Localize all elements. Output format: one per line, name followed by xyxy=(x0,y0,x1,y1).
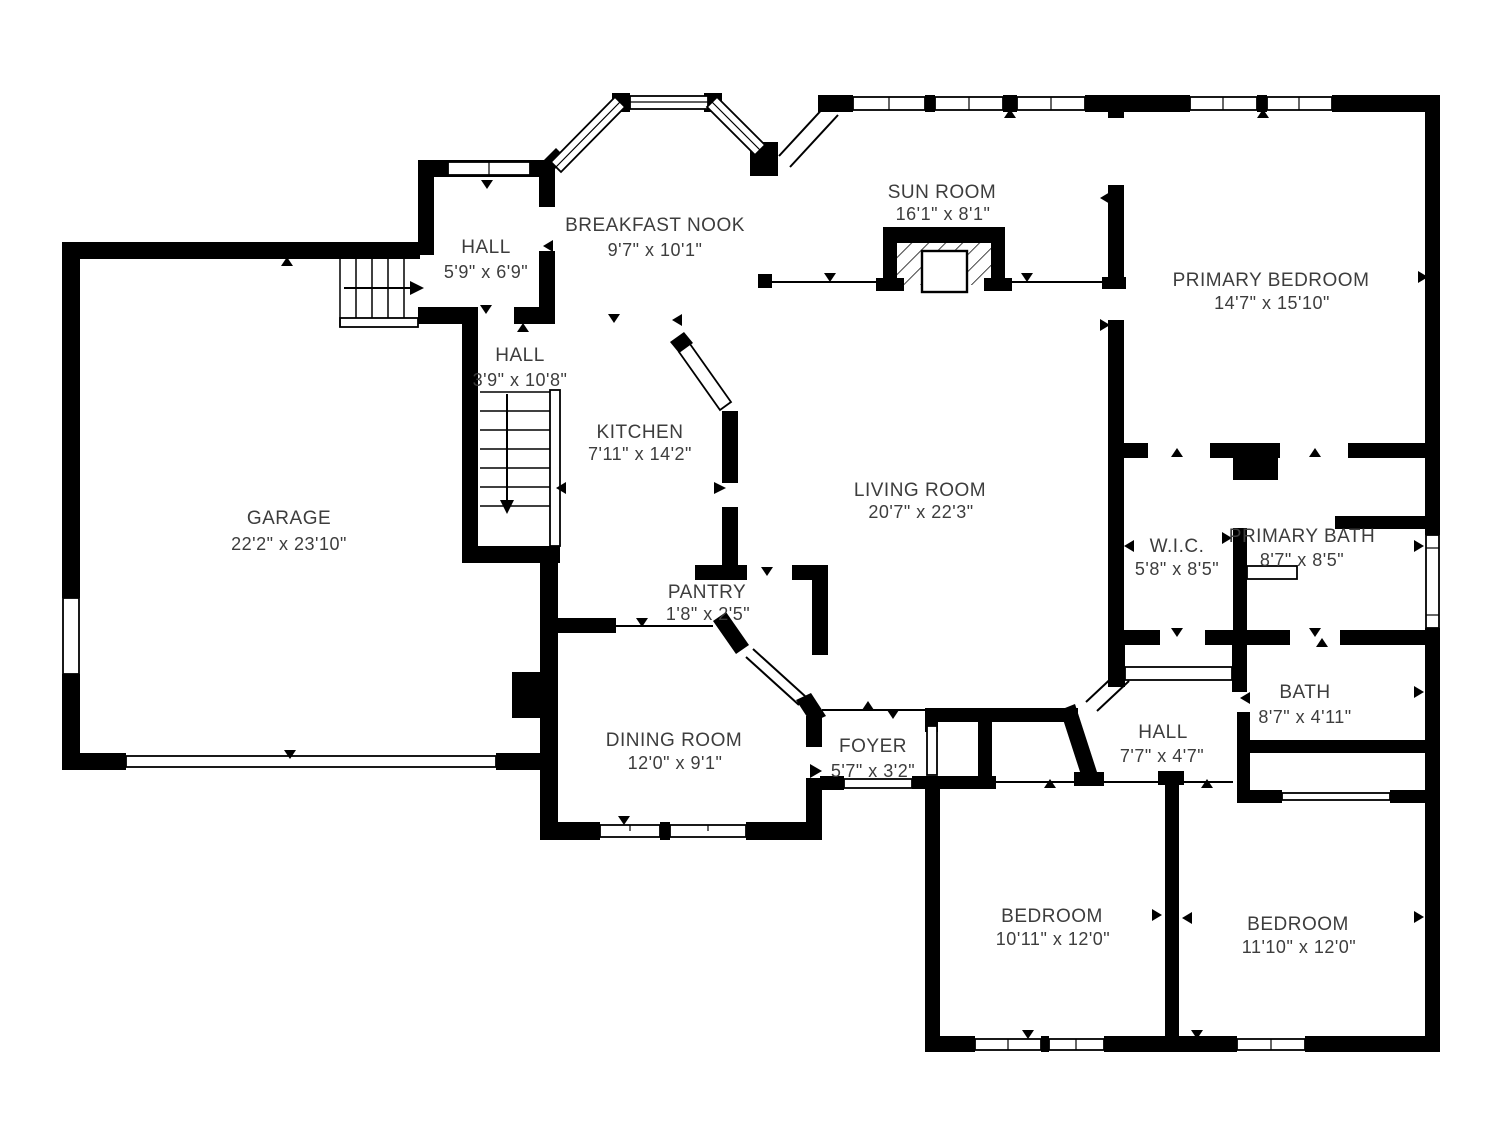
door-tick xyxy=(1124,540,1134,552)
door-tick xyxy=(1201,779,1213,788)
room-dims-dining-room: 12'0" x 9'1" xyxy=(628,753,723,773)
door-tick xyxy=(1021,273,1033,282)
garage-door xyxy=(126,756,496,767)
room-dims-hall-stairs: 3'9" x 10'8" xyxy=(473,370,568,390)
room-label-living-room: LIVING ROOM xyxy=(854,480,986,501)
door-tick xyxy=(862,701,874,710)
room-label-primary-bedroom: PRIMARY BEDROOM xyxy=(1173,270,1370,291)
room-dims-foyer: 5'7" x 3'2" xyxy=(831,761,915,781)
room-label-dining-room: DINING ROOM xyxy=(606,730,742,751)
room-dims-bedroom-left: 10'11" x 12'0" xyxy=(996,929,1110,949)
room-dims-bath: 8'7" x 4'11" xyxy=(1258,707,1351,727)
door-tick xyxy=(517,323,529,332)
door-tick xyxy=(1309,448,1321,457)
door-tick xyxy=(1022,1030,1034,1039)
stairs-up-arrow xyxy=(410,281,424,295)
stairs-down-arrow xyxy=(500,500,514,514)
door-tick xyxy=(714,482,726,494)
door-tick xyxy=(480,305,492,314)
room-label-hall-stairs: HALL xyxy=(495,345,545,366)
room-dims-primary-bedroom: 14'7" x 15'10" xyxy=(1214,293,1330,313)
room-label-bath: BATH xyxy=(1279,682,1330,703)
door-tick xyxy=(810,764,822,778)
room-label-hall-bedrooms: HALL xyxy=(1138,722,1188,743)
door-tick xyxy=(608,314,620,323)
door-tick xyxy=(1240,692,1250,704)
basement-stairs xyxy=(480,392,550,514)
room-label-breakfast-nook: BREAKFAST NOOK xyxy=(565,215,745,236)
room-label-bedroom-right: BEDROOM xyxy=(1247,914,1349,935)
door-tick xyxy=(887,710,899,719)
room-label-foyer: FOYER xyxy=(839,736,907,757)
floor-plan-page: GARAGE 22'2" x 23'10" HALL 5'9" x 6'9" B… xyxy=(0,0,1500,1125)
door-tick xyxy=(1182,912,1192,924)
room-label-bedroom-left: BEDROOM xyxy=(1001,906,1103,927)
door-tick xyxy=(1152,909,1162,921)
door-tick xyxy=(1316,638,1328,647)
walls xyxy=(62,93,1440,1052)
room-dims-wic: 5'8" x 8'5" xyxy=(1135,559,1219,579)
windows xyxy=(63,96,1439,1050)
door-tick xyxy=(1309,628,1321,637)
door-tick xyxy=(1171,448,1183,457)
closet-opening xyxy=(1282,793,1390,800)
fireplace xyxy=(876,227,1012,292)
room-dims-breakfast-nook: 9'7" x 10'1" xyxy=(608,240,703,260)
room-label-pantry: PANTRY xyxy=(668,582,746,603)
door-tick xyxy=(824,273,836,282)
door-tick xyxy=(1414,911,1424,923)
door-tick xyxy=(1171,628,1183,637)
room-dims-sun-room: 16'1" x 8'1" xyxy=(896,204,991,224)
stair-edge xyxy=(340,318,418,327)
door-tick xyxy=(1414,686,1424,698)
floor-plan: GARAGE 22'2" x 23'10" HALL 5'9" x 6'9" B… xyxy=(0,0,1500,1125)
door-tick xyxy=(481,180,493,189)
room-label-primary-bath: PRIMARY BATH xyxy=(1229,526,1375,547)
door-tick xyxy=(618,816,630,825)
closet-door xyxy=(927,726,937,775)
door-tick xyxy=(672,314,682,326)
garage-stairs xyxy=(340,259,424,327)
room-label-wic: W.I.C. xyxy=(1150,536,1205,557)
door-tick xyxy=(761,567,773,576)
room-label-hall-upper: HALL xyxy=(461,237,511,258)
room-dims-bedroom-right: 11'10" x 12'0" xyxy=(1242,937,1356,957)
room-dims-pantry: 1'8" x 2'5" xyxy=(666,604,750,624)
cased-opening xyxy=(679,344,731,410)
door-tick xyxy=(1414,540,1424,552)
room-label-sun-room: SUN ROOM xyxy=(888,182,997,203)
stair-railing xyxy=(550,390,560,546)
cased-opening xyxy=(1125,667,1232,680)
door-tick xyxy=(1100,192,1110,204)
room-dims-living-room: 20'7" x 22'3" xyxy=(868,502,973,522)
room-dims-hall-upper: 5'9" x 6'9" xyxy=(444,262,528,282)
room-label-garage: GARAGE xyxy=(247,508,331,529)
room-dims-garage: 22'2" x 23'10" xyxy=(231,534,347,554)
fireplace-insert xyxy=(922,251,967,292)
room-dims-kitchen: 7'11" x 14'2" xyxy=(588,444,692,464)
room-dims-primary-bath: 8'7" x 8'5" xyxy=(1260,550,1344,570)
window xyxy=(63,598,79,674)
room-label-kitchen: KITCHEN xyxy=(597,422,684,443)
window xyxy=(1426,535,1439,628)
room-dims-hall-bedrooms: 7'7" x 4'7" xyxy=(1120,746,1204,766)
door-tick xyxy=(1044,779,1056,788)
door-tick xyxy=(543,240,553,252)
